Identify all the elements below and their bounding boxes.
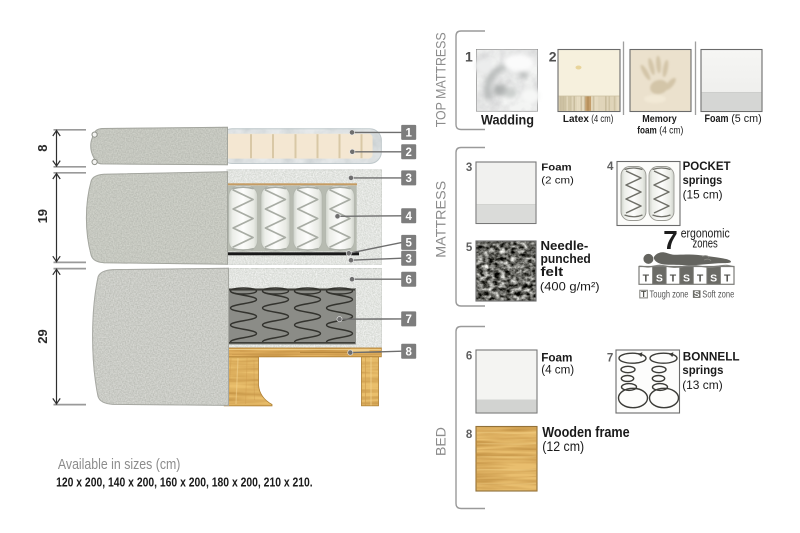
svg-text:Memory: Memory: [642, 114, 677, 125]
svg-text:POCKET: POCKET: [683, 159, 732, 173]
svg-text:(5 cm): (5 cm): [731, 113, 762, 125]
svg-text:(2 cm): (2 cm): [541, 175, 574, 187]
svg-text:3: 3: [466, 162, 472, 174]
svg-text:3: 3: [405, 173, 411, 185]
svg-text:springs: springs: [683, 173, 723, 187]
svg-text:7: 7: [405, 314, 411, 326]
svg-text:(15 cm): (15 cm): [683, 188, 723, 202]
svg-text:S: S: [710, 272, 717, 284]
svg-text:Wadding: Wadding: [481, 112, 534, 128]
svg-text:T: T: [697, 272, 704, 284]
svg-text:(12 cm): (12 cm): [542, 438, 584, 454]
svg-text:T: T: [643, 272, 650, 284]
svg-text:punched: punched: [541, 252, 591, 266]
svg-text:7: 7: [607, 352, 613, 364]
svg-text:2: 2: [549, 48, 557, 64]
svg-text:Foam: Foam: [541, 161, 571, 173]
svg-text:5: 5: [466, 242, 473, 254]
svg-text:S: S: [683, 272, 690, 284]
svg-text:BONNELL: BONNELL: [683, 352, 740, 364]
svg-text:8: 8: [35, 145, 50, 152]
svg-text:4: 4: [405, 211, 412, 223]
svg-text:T: T: [670, 272, 677, 284]
svg-text:BED: BED: [433, 427, 449, 456]
svg-text:(13 cm): (13 cm): [682, 378, 723, 392]
svg-text:springs: springs: [682, 363, 723, 377]
svg-text:MATTRESS: MATTRESS: [433, 181, 449, 258]
svg-text:Needle-: Needle-: [541, 239, 589, 253]
svg-text:5: 5: [405, 238, 412, 250]
svg-text:(4 cm): (4 cm): [659, 126, 683, 137]
svg-text:8: 8: [466, 429, 473, 441]
svg-text:Foam: Foam: [705, 113, 729, 125]
svg-text:8: 8: [405, 346, 412, 358]
svg-text:19: 19: [35, 209, 50, 223]
svg-text:(4 cm): (4 cm): [591, 114, 613, 125]
svg-text:(400 g/m²): (400 g/m²): [540, 280, 600, 294]
svg-text:TOP MATTRESS: TOP MATTRESS: [433, 32, 449, 127]
svg-text:Soft zone: Soft zone: [702, 289, 734, 300]
svg-text:S: S: [694, 289, 700, 299]
svg-text:zones: zones: [693, 236, 719, 251]
svg-text:6: 6: [466, 351, 472, 363]
svg-text:120 x 200, 140 x 200, 160 x 20: 120 x 200, 140 x 200, 160 x 200, 180 x 2…: [56, 474, 313, 489]
svg-text:1: 1: [405, 128, 412, 140]
svg-text:Tough zone: Tough zone: [650, 289, 689, 300]
svg-text:(4 cm): (4 cm): [541, 362, 574, 376]
svg-text:3: 3: [405, 253, 411, 265]
svg-text:6: 6: [405, 274, 411, 286]
svg-text:1: 1: [465, 48, 473, 64]
svg-text:Latex: Latex: [563, 114, 589, 125]
svg-text:T: T: [641, 289, 647, 299]
svg-text:2: 2: [405, 147, 411, 159]
svg-text:Available in sizes (cm): Available in sizes (cm): [58, 457, 180, 473]
svg-text:felt: felt: [541, 265, 565, 279]
svg-text:S: S: [656, 272, 663, 284]
svg-text:foam: foam: [637, 126, 657, 137]
svg-text:T: T: [724, 272, 731, 284]
svg-text:4: 4: [607, 161, 614, 173]
svg-text:29: 29: [35, 329, 50, 343]
